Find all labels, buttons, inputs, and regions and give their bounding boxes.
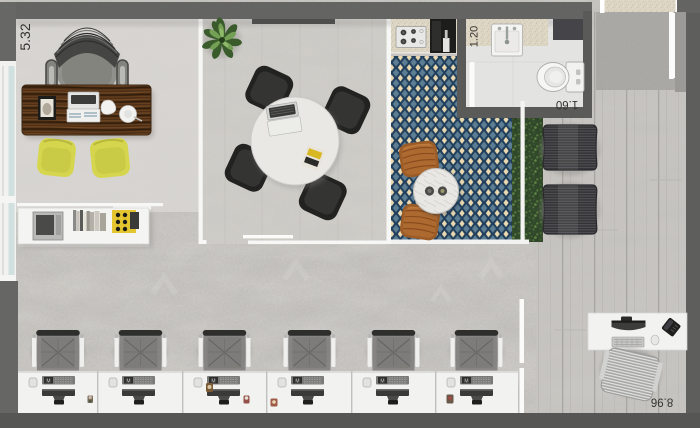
svg-text:M: M: [295, 379, 299, 385]
svg-text:5.32: 5.32: [17, 23, 33, 50]
svg-text:1.20: 1.20: [469, 26, 481, 47]
svg-text:1.60: 1.60: [556, 98, 578, 110]
svg-text:8.96: 8.96: [651, 396, 673, 408]
svg-text:M: M: [126, 379, 130, 385]
svg-text:M: M: [46, 379, 50, 385]
svg-text:M: M: [464, 379, 468, 385]
svg-text:M: M: [380, 379, 384, 385]
